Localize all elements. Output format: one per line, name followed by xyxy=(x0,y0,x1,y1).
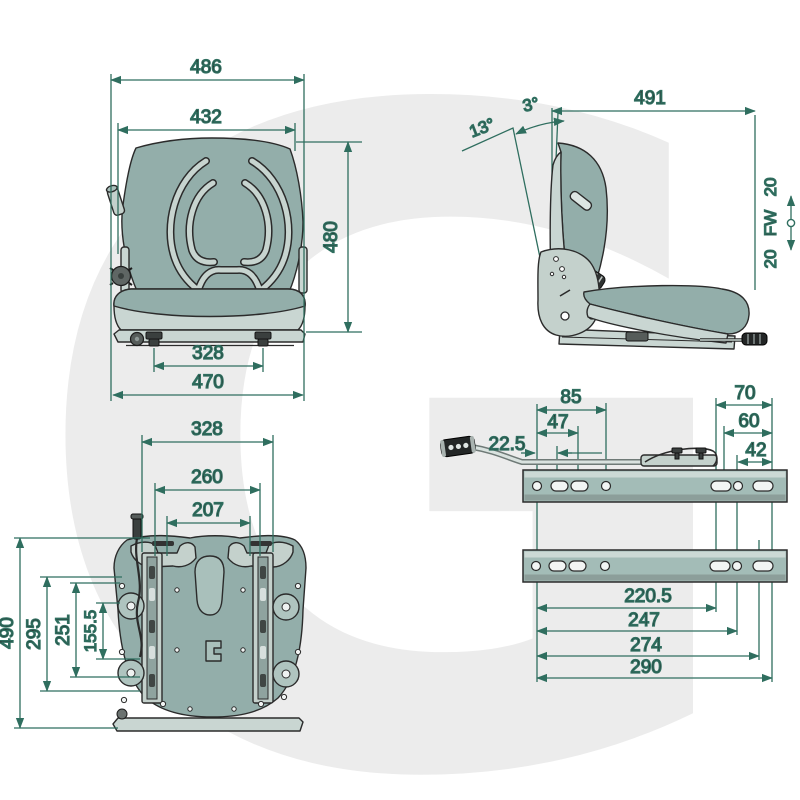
bar-bolt-icon xyxy=(117,709,127,719)
rail-lower xyxy=(523,550,787,582)
dim-underside-length-4: 155.5 xyxy=(81,610,100,653)
dim-front-bolt-spacing: 328 xyxy=(192,343,224,364)
dim-rail-274: 274 xyxy=(630,635,662,656)
dim-underside-length-3: 251 xyxy=(53,614,74,646)
dim-rail-290: 290 xyxy=(630,657,662,678)
dim-side-travel-rear: 20 xyxy=(761,178,780,197)
technical-drawing-page: G xyxy=(0,0,800,800)
dim-front-backrest-width: 432 xyxy=(190,107,222,128)
adjuster-knob-icon xyxy=(131,333,144,346)
rail-upper xyxy=(523,470,787,502)
dim-front-overall-height: 480 xyxy=(321,221,342,253)
dim-underside-inner-width: 207 xyxy=(192,500,224,521)
dim-rail-60: 60 xyxy=(738,411,759,432)
slide-grip-icon xyxy=(742,333,767,345)
seat-front-illustration xyxy=(106,138,307,346)
dim-rail-85: 85 xyxy=(560,387,581,408)
dim-rail-220-5: 220.5 xyxy=(624,586,672,607)
dim-rail-42: 42 xyxy=(745,440,766,461)
right-side-bracket xyxy=(299,247,307,293)
dim-rail-47: 47 xyxy=(547,412,568,433)
release-pin-icon xyxy=(133,518,141,539)
front-bar xyxy=(113,718,303,731)
dim-side-overall-depth: 491 xyxy=(634,88,666,109)
cushion-top xyxy=(114,289,305,317)
dim-underside-slot-width: 260 xyxy=(191,467,223,488)
dim-rail-247: 247 xyxy=(628,610,660,631)
dim-side-travel-label: FW xyxy=(761,210,780,236)
dim-side-travel-front: 20 xyxy=(761,250,780,269)
travel-indicator: 20 FW 20 xyxy=(761,178,795,269)
dim-front-base-width: 470 xyxy=(192,372,224,393)
dim-rail-22-5: 22.5 xyxy=(489,434,526,455)
seat-dimension-diagram: G xyxy=(0,0,800,800)
dim-underside-length-2: 295 xyxy=(24,618,45,650)
dim-underside-overall-length: 490 xyxy=(0,617,18,649)
dim-rail-70: 70 xyxy=(734,383,755,404)
underside-rail-right xyxy=(253,553,273,703)
underside-rail-left xyxy=(142,553,162,703)
dim-front-overall-width: 486 xyxy=(190,57,222,78)
dim-underside-rail-outer: 328 xyxy=(191,419,223,440)
